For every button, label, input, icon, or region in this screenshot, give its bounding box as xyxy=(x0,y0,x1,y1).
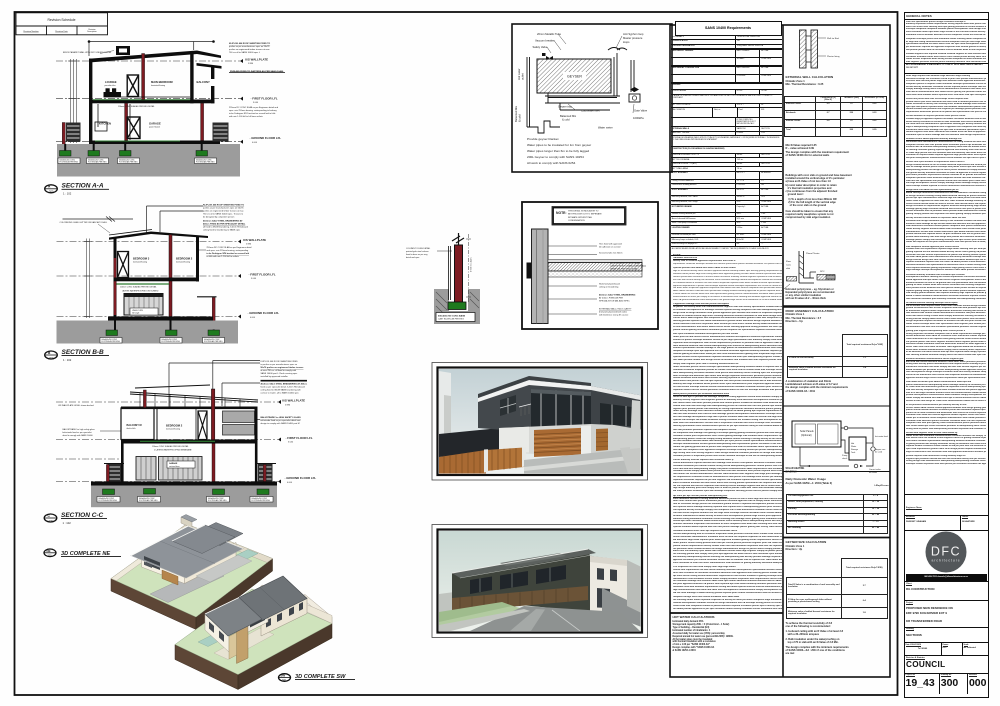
svg-text:be designed by competent perso: be designed by competent person xyxy=(203,216,235,219)
svg-text:full height: full height xyxy=(132,312,140,315)
svg-text:Tiles fixed with approved: Tiles fixed with approved xyxy=(599,243,623,246)
svg-text:design to comply with SANS 104: design to comply with SANS 10400 part M xyxy=(261,422,300,425)
svg-text:Cold water inlet: Cold water inlet xyxy=(581,109,600,113)
svg-text:0 000: 0 000 xyxy=(252,142,258,144)
svg-text:fixed as per specialist detail: fixed as per specialist detail. 6.4mm Rh… xyxy=(261,386,306,389)
svg-text:U/S WALLPLATE LEVEL shown dash: U/S WALLPLATE LEVEL shown dashed xyxy=(58,404,94,407)
svg-text:LINEN CUPB: LINEN CUPB xyxy=(132,310,144,312)
svg-text:- GROUND FLOOR LFL: - GROUND FLOOR LFL xyxy=(285,476,317,480)
svg-text:CAST IN-SITU AS PER ENG: CAST IN-SITU AS PER ENG xyxy=(438,318,464,321)
svg-text:Gate Valve: Gate Valve xyxy=(634,109,648,113)
svg-text:FOOTING AS PER ENG: FOOTING AS PER ENG xyxy=(99,499,118,502)
svg-text:to falls with min 1:100 fall t: to falls with min 1:100 fall to outlets xyxy=(207,255,239,258)
svg-text:GARAGE: GARAGE xyxy=(169,462,178,465)
svg-text:MAIN BEDROOM: MAIN BEDROOM xyxy=(151,80,173,84)
svg-text:detail and spec: detail and spec xyxy=(406,256,419,259)
svg-text:FOOTING AS PER ENG: FOOTING AS PER ENG xyxy=(102,340,121,343)
svg-text:GARAGE: GARAGE xyxy=(149,122,161,126)
svg-text:THIS DETAIL IS INDICATIVE TO: THIS DETAIL IS INDICATIVE TO xyxy=(568,210,599,213)
svg-text:SW: SW xyxy=(281,674,286,678)
svg-text:U/S WALLPLATE: U/S WALLPLATE xyxy=(282,398,305,402)
svg-text:ex mains: ex mains xyxy=(869,472,877,474)
svg-text:1000kPa: 1000kPa xyxy=(633,116,644,120)
svg-text:Floor: Floor xyxy=(786,260,791,263)
svg-text:ceiling fixed to 38x38 SABS br: ceiling fixed to 38x38 SABS brandering w… xyxy=(261,389,302,392)
svg-text:installed by approved installe: installed by approved installer xyxy=(261,375,289,378)
svg-text:Correct valve: Correct valve xyxy=(869,468,882,471)
svg-text:NE: NE xyxy=(47,549,51,553)
svg-text:110mm CONC SLAB AS PER ENG DET: 110mm CONC SLAB AS PER ENG DETAIL xyxy=(118,105,155,108)
svg-text:(REINF AS PER ENG DETAIL): (REINF AS PER ENG DETAIL) xyxy=(610,268,639,271)
svg-text:5 886: 5 886 xyxy=(248,63,254,65)
svg-text:balustrade fixed as per specia: balustrade fixed as per specialist xyxy=(63,431,92,434)
svg-text:laminated flooring: laminated flooring xyxy=(151,84,165,87)
svg-text:3D COMPLETE NE: 3D COMPLETE NE xyxy=(61,551,110,557)
svg-text:BALCONY M: BALCONY M xyxy=(127,424,142,427)
svg-text:Solar Panels: Solar Panels xyxy=(800,430,814,433)
svg-text:- FIRST FLOOR LFL: - FIRST FLOOR LFL xyxy=(251,97,278,101)
svg-text:255mm RC CONC SLAB as per Engi: 255mm RC CONC SLAB as per Engineers deta… xyxy=(207,246,252,249)
svg-text:300: 300 xyxy=(49,356,54,360)
svg-text:BE THROUGH OUT TO SEPERATE: BE THROUGH OUT TO SEPERATE xyxy=(568,213,602,216)
svg-text:Storage: Storage xyxy=(851,448,859,451)
svg-text:Pump: Pump xyxy=(842,455,848,457)
svg-text:BRICK PARAPET WALL WITH DPC UN: BRICK PARAPET WALL WITH DPC UNDER COPING xyxy=(63,51,112,54)
svg-text:BEDROOM 2: BEDROOM 2 xyxy=(176,257,193,261)
svg-text:2 500 min depth: 2 500 min depth xyxy=(470,258,473,272)
svg-text:cornice to match. all to SANS: cornice to match. all to SANS 10400 spec xyxy=(261,392,299,395)
svg-text:Anti Syphon loop: Anti Syphon loop xyxy=(623,32,644,36)
svg-text:FOOTING AS PER ENG: FOOTING AS PER ENG xyxy=(208,499,227,502)
svg-text:All work to comply with SANS 0: All work to comply with SANS 0254 xyxy=(527,161,576,165)
svg-text:porcelain tiles: porcelain tiles xyxy=(105,84,116,87)
svg-text:Revision Date: Revision Date xyxy=(55,30,68,33)
svg-text:U/S WALLPLATE: U/S WALLPLATE xyxy=(243,238,266,242)
svg-text:slab: slab xyxy=(786,268,791,270)
svg-text:SECTION B-B: SECTION B-B xyxy=(62,349,105,356)
svg-text:EXTERNAL WALL 270mm CAVITY: EXTERNAL WALL 270mm CAVITY xyxy=(599,308,632,311)
svg-text:40x6mm GALV STEEL BRANDERING A: 40x6mm GALV STEEL BRANDERING AT 400crs xyxy=(261,383,309,386)
svg-text:FOOTING AS PER ENG: FOOTING AS PER ENG xyxy=(162,340,181,343)
svg-text:to be Derbigum SP4 torched on: to be Derbigum SP4 torched on screed lai… xyxy=(207,252,250,255)
svg-text:purlins on engineered timber t: purlins on engineered timber trusses at … xyxy=(203,210,244,213)
svg-text:3 040: 3 040 xyxy=(288,441,294,443)
svg-text:loops: loops xyxy=(623,40,630,44)
svg-text:Revision Number: Revision Number xyxy=(23,31,39,33)
svg-text:400crs FIXED AS PER SPECIALIST: 400crs FIXED AS PER SPECIALIST DETAIL xyxy=(203,223,246,226)
svg-text:SANS 10400 part L. Roof coveri: SANS 10400 part L. Roof covering spec xyxy=(261,372,298,375)
svg-text:KITCHEN: KITCHEN xyxy=(99,122,111,126)
svg-text:SECTION C-C: SECTION C-C xyxy=(61,512,104,519)
svg-text:Geyser tray: Geyser tray xyxy=(558,105,573,109)
svg-text:brickwork plastered both sides: brickwork plastered both sides xyxy=(599,311,627,314)
svg-text:760 crs all to SANS 10400 spec: 760 crs all to SANS 10400 spec. Trusses … xyxy=(203,213,244,216)
svg-text:SECTION A-A: SECTION A-A xyxy=(62,183,104,190)
svg-text:purlins as per manufacturers s: purlins as per manufacturers spec on 50x… xyxy=(229,45,270,48)
svg-text:& cold: & cold xyxy=(562,118,570,122)
svg-text:be used: be used xyxy=(875,452,882,454)
svg-text:1 : 102: 1 : 102 xyxy=(63,521,72,525)
svg-text:Hot water: Hot water xyxy=(517,68,521,80)
svg-text:KLIPLOK 406 ROOF SHEETING FIXE: KLIPLOK 406 ROOF SHEETING FIXED TO xyxy=(229,42,270,45)
svg-text:300: 300 xyxy=(48,554,53,557)
svg-text:tile adhesive on screed: tile adhesive on screed xyxy=(599,246,621,249)
svg-text:to purlins as per manufacturer: to purlins as per manufacturers spec on xyxy=(261,363,298,366)
svg-text:110mm CONC SLAB AS PER ENG DET: 110mm CONC SLAB AS PER ENG DETAIL xyxy=(120,286,157,289)
svg-text:BEDROOM 3: BEDROOM 3 xyxy=(133,257,150,261)
svg-text:INTIMATE INTERSTITIAL: INTIMATE INTERSTITIAL xyxy=(568,216,593,219)
svg-text:FOOTING AS PER ENG: FOOTING AS PER ENG xyxy=(88,161,107,164)
svg-text:Safety Valve: Safety Valve xyxy=(533,45,548,49)
svg-text:Water pipes longer than 6m to: Water pipes longer than 6m to be fully l… xyxy=(527,149,589,153)
svg-text:200L Geyser to comply with SAN: 200L Geyser to comply with SANS 10254 xyxy=(527,155,584,159)
svg-text:AT 400crs FIXED AS PER: AT 400crs FIXED AS PER xyxy=(599,297,624,300)
svg-text:with min 1:100 fall to full bo: with min 1:100 fall to full bore outlets xyxy=(229,115,263,118)
svg-text:25mm Plaster: 25mm Plaster xyxy=(806,252,820,255)
svg-text:KLIPLOK 406 ROOF SHEETING FIXE: KLIPLOK 406 ROOF SHEETING FIXED TO xyxy=(203,204,244,207)
svg-text:laminated flooring: laminated flooring xyxy=(166,428,180,431)
svg-text:Tank: Tank xyxy=(851,452,855,454)
svg-text:spec. min 255mm bearing. water: spec. min 255mm bearing. waterproofing t… xyxy=(229,109,278,112)
svg-text:tiled to falls: tiled to falls xyxy=(127,427,136,430)
svg-text:- GROUND FLOOR LFL: - GROUND FLOOR LFL xyxy=(250,136,282,140)
svg-text:U/S WALLPLATE: U/S WALLPLATE xyxy=(245,57,268,61)
svg-text:purlins on engineered timber t: purlins on engineered timber trusses at … xyxy=(229,48,270,51)
svg-text:(Optional): (Optional) xyxy=(801,434,812,437)
svg-text:0 000: 0 000 xyxy=(287,482,293,484)
svg-text:300: 300 xyxy=(49,190,54,194)
svg-text:Revision Schedule: Revision Schedule xyxy=(47,18,75,22)
svg-text:at max 760 crs. all fixed to c: at max 760 crs. all fixed to comply with xyxy=(261,369,297,372)
svg-text:sectional door: sectional door xyxy=(169,465,180,468)
svg-text:KLIPLOK 406 ROOF SHEETING FIXE: KLIPLOK 406 ROOF SHEETING FIXED xyxy=(261,361,299,363)
svg-text:balustrade fixed as per specia: balustrade fixed as per specialist detai… xyxy=(261,419,302,422)
svg-text:laminated flooring: laminated flooring xyxy=(133,261,147,264)
svg-text:to be Derbigum SP4 torched on: to be Derbigum SP4 torched on screed lai… xyxy=(229,112,275,115)
svg-text:760 crs all to SANS 10400 spec: 760 crs all to SANS 10400 spec L xyxy=(229,51,261,54)
svg-text:LAYERS WATERPROOFING ON SCREED: LAYERS WATERPROOFING ON SCREED xyxy=(122,290,159,293)
svg-text:hot water feed: hot water feed xyxy=(875,435,888,438)
svg-text:Geyser can: Geyser can xyxy=(875,449,885,451)
svg-text:3 040: 3 040 xyxy=(253,102,259,104)
svg-text:FOOTING AS PER ENG: FOOTING AS PER ENG xyxy=(139,499,158,502)
svg-text:all fixed to 38x38 brandering.: all fixed to 38x38 brandering. 6.4mm Rhi… xyxy=(203,226,249,229)
svg-text:Wall tie Rod: Wall tie Rod xyxy=(827,37,839,40)
svg-text:BALUSTRADE 1m high safety glas: BALUSTRADE 1m high safety glass xyxy=(63,428,95,431)
svg-text:- FIRST FLOOR LFL: - FIRST FLOOR LFL xyxy=(286,436,313,440)
svg-text:FOOTING AS PER ENG: FOOTING AS PER ENG xyxy=(252,499,271,502)
svg-text:Master pressure: Master pressure xyxy=(623,36,643,40)
svg-text:Conc: Conc xyxy=(786,265,792,267)
svg-text:SOLAR HEATING: SOLAR HEATING xyxy=(786,467,805,470)
svg-text:1 : 102: 1 : 102 xyxy=(63,358,72,362)
svg-text:- GROUND FLOOR LFL: - GROUND FLOOR LFL xyxy=(248,311,280,315)
svg-text:with brickforce every 4th cour: with brickforce every 4th course xyxy=(599,314,629,317)
svg-text:- FIRST FLOOR LFL: - FIRST FLOOR LFL xyxy=(249,272,276,276)
svg-text:GEYSER: GEYSER xyxy=(567,75,582,79)
svg-text:20mm Metallic Tube: 20mm Metallic Tube xyxy=(537,32,562,36)
svg-text:purlins as per manufacturers s: purlins as per manufacturers spec on 50x… xyxy=(203,207,244,210)
svg-text:FOOTING AS PER ENG: FOOTING AS PER ENG xyxy=(119,161,138,164)
svg-text:FOOTING AS PER ENG: FOOTING AS PER ENG xyxy=(196,161,215,164)
svg-text:Provide geyser blanket: Provide geyser blanket xyxy=(527,137,559,141)
svg-text:outlet: outlet xyxy=(521,73,525,80)
svg-text:Description: Description xyxy=(87,30,96,33)
svg-text:Balanced Mix: Balanced Mix xyxy=(514,105,518,122)
svg-text:Screed to falls min 30mm: Screed to falls min 30mm xyxy=(599,252,623,255)
svg-text:and spec. min 255mm bearing, w: and spec. min 255mm bearing, waterproofi… xyxy=(207,249,250,252)
svg-text:SPECIALIST DETAIL AND SPEC: SPECIALIST DETAIL AND SPEC xyxy=(599,300,630,303)
svg-text:detail to comply with SANS 104: detail to comply with SANS 10400 xyxy=(63,434,94,437)
svg-text:ceiling fixed to brandering to: ceiling fixed to brandering to SANS spec xyxy=(203,229,240,232)
svg-text:fixed to base as per eng: fixed to base as per eng xyxy=(406,253,427,256)
svg-text:50x76 purlins on engineered ti: 50x76 purlins on engineered timber truss… xyxy=(261,366,305,369)
svg-text:Water meter: Water meter xyxy=(598,126,613,130)
svg-text:FOOTING AS PER ENG: FOOTING AS PER ENG xyxy=(204,340,223,343)
svg-text:Hot: Hot xyxy=(851,442,855,445)
svg-text:power floated: power floated xyxy=(149,126,160,129)
svg-text:3 040: 3 040 xyxy=(251,278,257,280)
svg-text:CONDENSATION: CONDENSATION xyxy=(568,219,585,222)
svg-text:Plaster lining: Plaster lining xyxy=(827,55,840,58)
svg-text:Water: Water xyxy=(851,445,857,448)
svg-text:BEDROOM 2: BEDROOM 2 xyxy=(166,424,183,428)
svg-text:FOOTING AS PER ENG: FOOTING AS PER ENG xyxy=(60,161,79,164)
svg-text:5 886: 5 886 xyxy=(246,243,252,245)
svg-text:600x600x700 CONC BASE: 600x600x700 CONC BASE xyxy=(438,314,466,317)
svg-text:DPC: DPC xyxy=(820,271,825,273)
svg-text:BALUSTRADE 1m HIGH SAFETY GLAS: BALUSTRADE 1m HIGH SAFETY GLASS xyxy=(261,416,302,419)
svg-text:painted galv steel column: painted galv steel column xyxy=(406,250,429,253)
svg-text:2 LAYERS WATERPROOFING MEMBRAN: 2 LAYERS WATERPROOFING MEMBRANE xyxy=(154,448,192,451)
svg-text:255 CONCRETE FLOOR SLAB: 255 CONCRETE FLOOR SLAB xyxy=(610,262,640,265)
svg-text:300: 300 xyxy=(49,519,54,523)
svg-text:CASTED IN-SITU SAND BLINDING: CASTED IN-SITU SAND BLINDING xyxy=(610,265,644,268)
svg-text:ceiling on brandering: ceiling on brandering xyxy=(599,286,619,289)
svg-text:40x6mm GALV STEEL BRANDERING A: 40x6mm GALV STEEL BRANDERING AT xyxy=(203,220,243,223)
svg-text:3D COMPLETE SW: 3D COMPLETE SW xyxy=(295,674,346,680)
svg-text:COLUMN TO ENG DETAIL: COLUMN TO ENG DETAIL xyxy=(406,247,431,250)
svg-text:Vacuum breaker: Vacuum breaker xyxy=(535,39,555,43)
svg-text:laminated flooring: laminated flooring xyxy=(176,261,190,264)
svg-text:& cold: & cold xyxy=(518,114,522,122)
svg-text:255mm RC CONC SLAB as per Engi: 255mm RC CONC SLAB as per Engineers deta… xyxy=(229,106,279,109)
svg-text:40x6mm GALV STEEL BRANDERING: 40x6mm GALV STEEL BRANDERING xyxy=(599,294,636,297)
svg-text:check: check xyxy=(842,458,847,460)
svg-text:Skimmed plasterboard: Skimmed plasterboard xyxy=(599,283,621,286)
svg-text:Water pipes to be insulated fo: Water pipes to be insulated for 1m from … xyxy=(527,143,591,147)
svg-text:BALCONY: BALCONY xyxy=(197,80,210,84)
svg-text:0 000: 0 000 xyxy=(250,317,256,319)
svg-text:110mm CONC SLAB AS PER ENG DET: 110mm CONC SLAB AS PER ENG DETAIL xyxy=(152,445,189,448)
svg-text:NOTE:: NOTE: xyxy=(556,211,567,215)
svg-text:5 886: 5 886 xyxy=(285,404,291,406)
svg-text:DIAGRAM: DIAGRAM xyxy=(786,470,797,473)
svg-text:COLORBOND OGEE GUTTER ON FASCI: COLORBOND OGEE GUTTER ON FASCIA TO FALL xyxy=(60,221,108,224)
svg-text:1 : 102: 1 : 102 xyxy=(63,192,72,196)
svg-text:LOUNGE: LOUNGE xyxy=(105,80,117,84)
svg-text:300: 300 xyxy=(282,679,287,682)
svg-text:Balanced Mix: Balanced Mix xyxy=(560,114,577,118)
